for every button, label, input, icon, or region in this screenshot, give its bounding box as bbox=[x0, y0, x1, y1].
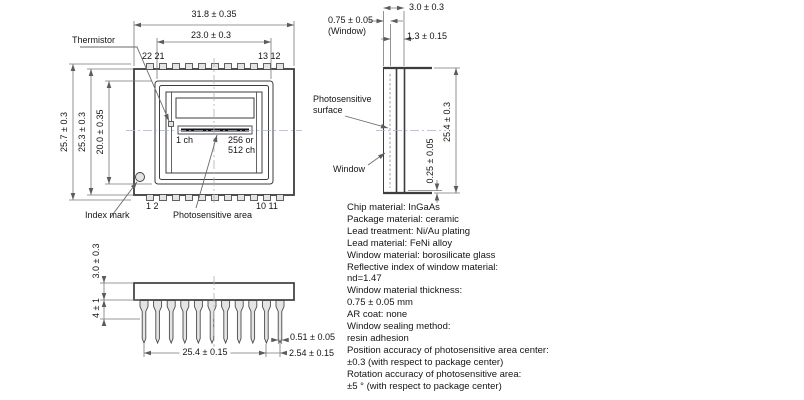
package-pin-top bbox=[225, 64, 232, 70]
last-channel-line1: 256 or bbox=[228, 135, 254, 145]
spec-line: Rotation accuracy of photosensitive area… bbox=[347, 369, 549, 381]
spec-line: 0.75 ± 0.05 mm bbox=[347, 297, 549, 309]
dim-height-body: 25.3 ± 0.3 bbox=[77, 112, 87, 152]
dimension-arrow bbox=[287, 23, 294, 28]
spec-line: Window material thickness: bbox=[347, 285, 549, 297]
dimension-arrow bbox=[107, 177, 112, 184]
pin-numbers-bottom-left: 1 2 bbox=[146, 201, 159, 211]
dimension-arrow bbox=[378, 151, 386, 159]
package-pin-top bbox=[173, 64, 180, 70]
photosensitive-bar bbox=[181, 129, 249, 132]
lead bbox=[208, 301, 216, 344]
package-pin-bottom bbox=[186, 195, 193, 201]
dimension-arrow bbox=[89, 188, 94, 195]
lead bbox=[140, 301, 148, 344]
pin-numbers-top-right: 13 12 bbox=[258, 51, 281, 61]
dimension-arrow bbox=[144, 351, 151, 356]
dimension-arrow bbox=[102, 293, 107, 300]
lead bbox=[262, 301, 270, 344]
package-pin-bottom bbox=[212, 195, 219, 201]
leader-lines bbox=[80, 47, 388, 218]
package-pin-top bbox=[238, 64, 245, 70]
package-pin-bottom bbox=[147, 195, 154, 201]
pin-numbers-top-left: 22 21 bbox=[142, 51, 165, 61]
package-pin-top bbox=[212, 64, 219, 70]
chip-area bbox=[176, 98, 254, 118]
dim-window-note: (Window) bbox=[328, 26, 366, 36]
photosensitive-surface-label-1: Photosensitive bbox=[313, 94, 372, 104]
package-pin-top bbox=[147, 64, 154, 70]
dim-package-width: 31.8 ± 0.35 bbox=[192, 9, 237, 19]
package-pin-top bbox=[251, 64, 258, 70]
spec-line: ±5 ° (with respect to package center) bbox=[347, 381, 549, 393]
spec-line: Reflective index of window material: bbox=[347, 262, 549, 274]
dimension-arrow bbox=[384, 6, 391, 11]
dim-lead-pitch: 2.54 ± 0.15 bbox=[289, 348, 334, 358]
package-pin-top bbox=[160, 64, 167, 70]
package-pin-bottom bbox=[173, 195, 180, 201]
dimension-arrow bbox=[102, 319, 107, 326]
thermistor-label: Thermistor bbox=[72, 35, 115, 45]
dimension-arrow bbox=[282, 338, 289, 343]
dim-window-thickness: 0.75 ± 0.05 bbox=[328, 15, 373, 25]
dim-body-thickness: 3.0 ± 0.3 bbox=[91, 244, 101, 279]
package-pin-bottom bbox=[225, 195, 232, 201]
dimension-arrow bbox=[280, 351, 287, 356]
spec-line: Chip material: InGaAs bbox=[347, 202, 549, 214]
dimension-arrow bbox=[157, 40, 164, 45]
spec-line: nd=1.47 bbox=[347, 273, 549, 285]
dim-lip: 1.3 ± 0.15 bbox=[407, 31, 447, 41]
dim-total-thickness: 3.0 ± 0.3 bbox=[409, 2, 444, 12]
index-mark-label: Index mark bbox=[85, 210, 130, 220]
package-pin-top bbox=[277, 64, 284, 70]
dimension-arrow bbox=[89, 69, 94, 76]
dimension-arrow bbox=[454, 186, 459, 193]
lead bbox=[249, 301, 257, 344]
photosensitive-area-label: Photosensitive area bbox=[173, 210, 252, 220]
dimension-arrow bbox=[264, 40, 271, 45]
first-channel-label: 1 ch bbox=[176, 135, 193, 145]
package-pin-top bbox=[199, 64, 206, 70]
pin-numbers-bottom-right: 10 11 bbox=[256, 201, 278, 211]
dimension-arrow bbox=[391, 19, 398, 24]
lead bbox=[167, 301, 175, 344]
dimension-arrow bbox=[435, 194, 440, 201]
package-pin-top bbox=[186, 64, 193, 70]
dim-lead-shoulder: 4 ± 1 bbox=[91, 298, 101, 318]
dimension-arrow bbox=[377, 19, 384, 24]
dimension-arrow bbox=[102, 300, 107, 307]
dimension-arrow bbox=[259, 351, 266, 356]
lead bbox=[222, 301, 230, 344]
spec-line: resin adhesion bbox=[347, 333, 549, 345]
dim-bottom-gap: 0.25 ± 0.05 bbox=[425, 139, 435, 184]
spec-line: Window sealing method: bbox=[347, 321, 549, 333]
package-pin-bottom bbox=[277, 195, 284, 201]
dim-height-frame: 20.0 ± 0.35 bbox=[95, 110, 105, 155]
lead bbox=[276, 301, 284, 344]
spec-line: Window material: borosilicate glass bbox=[347, 250, 549, 262]
dimension-arrow bbox=[435, 184, 440, 191]
dimension-arrow bbox=[134, 23, 141, 28]
spec-line: Lead material: FeNi alloy bbox=[347, 238, 549, 250]
last-channel-line2: 512 ch bbox=[228, 145, 255, 155]
spec-line: AR coat: none bbox=[347, 309, 549, 321]
thermistor-square bbox=[169, 122, 174, 127]
dimension-arrow bbox=[71, 64, 76, 71]
window-label: Window bbox=[333, 164, 365, 174]
spec-line: Position accuracy of photosensitive area… bbox=[347, 345, 549, 357]
dim-height-overall: 25.7 ± 0.3 bbox=[59, 112, 69, 152]
package-pin-bottom bbox=[264, 195, 271, 201]
lead bbox=[235, 301, 243, 344]
dimension-arrow bbox=[164, 114, 171, 122]
spec-line: Package material: ceramic bbox=[347, 214, 549, 226]
dim-side-height: 25.4 ± 0.3 bbox=[442, 102, 452, 142]
spec-line: ±0.3 (with respect to package center) bbox=[347, 357, 549, 369]
package-pin-top bbox=[264, 64, 271, 70]
dim-lead-span: 25.4 ± 0.15 bbox=[180, 347, 231, 357]
spec-text-block: Chip material: InGaAs Package material: … bbox=[347, 202, 549, 393]
dimension-arrow bbox=[454, 68, 459, 75]
dimension-arrow bbox=[397, 6, 404, 11]
dim-lead-width: 0.51 ± 0.05 bbox=[290, 332, 335, 342]
package-pin-bottom bbox=[160, 195, 167, 201]
dimension-arrow bbox=[71, 193, 76, 200]
datasheet-mechanical-drawing: 31.8 ± 0.35 23.0 ± 0.3 Thermistor 22 21 … bbox=[0, 0, 804, 400]
dimension-arrow bbox=[107, 81, 112, 88]
lead bbox=[154, 301, 162, 344]
photosensitive-surface-label-2: surface bbox=[313, 105, 343, 115]
lead bbox=[181, 301, 189, 344]
dimension-arrow bbox=[381, 124, 389, 130]
dimension-arrow bbox=[102, 276, 107, 283]
spec-line: Lead treatment: Ni/Au plating bbox=[347, 226, 549, 238]
dimension-arrow bbox=[271, 338, 278, 343]
dimension-arrow bbox=[384, 37, 391, 42]
lead-group bbox=[140, 301, 284, 344]
index-mark-circle bbox=[136, 173, 145, 182]
package-pin-bottom bbox=[238, 195, 245, 201]
dim-window-width: 23.0 ± 0.3 bbox=[191, 30, 231, 40]
package-pin-bottom bbox=[251, 195, 258, 201]
lead bbox=[194, 301, 202, 344]
